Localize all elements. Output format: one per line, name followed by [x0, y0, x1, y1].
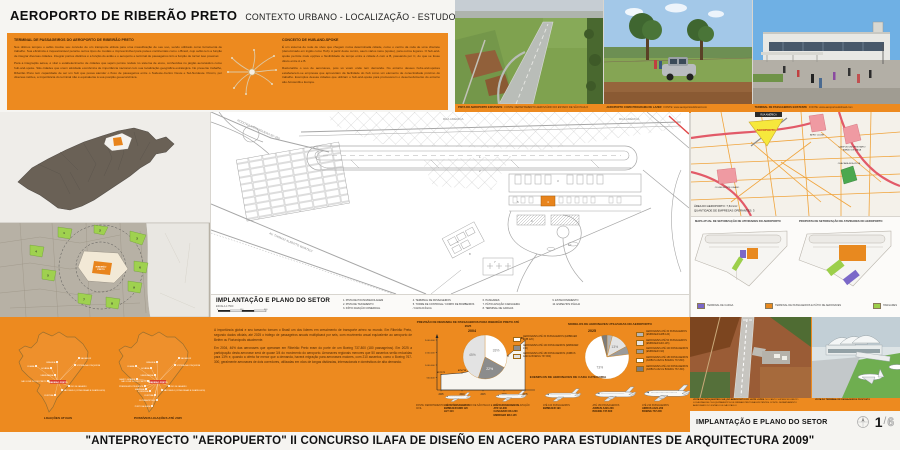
intro-left-paragraph: Nos últimos tempos o avião mudou seu con…: [14, 45, 222, 59]
caption-source: FONTE: www.aeroportosdobrasil.com: [809, 106, 853, 109]
svg-text:1.000.000: 1.000.000: [425, 365, 436, 367]
demand-chart-title: PREVISÃO DE DEMANDA DE PASSAGEIROS PARA …: [416, 321, 520, 329]
page-subtitle: CONTEXTO URBANO - LOCALIZAÇÃO - ESTUDO D…: [245, 12, 455, 22]
brazil-map-future-links: CUIABÁBRASÍLIAGOIÂNIASALVADORVITÓRIA DA …: [110, 329, 206, 415]
terminal-block: [747, 248, 758, 259]
pie-chart-2004: 33%22%45%: [462, 334, 508, 380]
intro-right-column: CONCEITO DE HUB-AND-SPOKE É um sistema d…: [282, 38, 440, 105]
svg-text:GOIÂNIA: GOIÂNIA: [141, 367, 150, 370]
svg-text:CURITIBA: CURITIBA: [44, 394, 54, 397]
sheet-number: 1: [875, 414, 883, 430]
road-label: RUA AMÉRICA: [619, 116, 640, 121]
zoning-legend-item: TERMINAL DE PASSAGEIROS E PÁTIO DE AERON…: [765, 303, 841, 309]
plan-title: IMPLANTAÇÃO E PLANO DO SETOR: [216, 297, 330, 304]
intro-left-column: TERMINAL DE PASSAGEIROS DO AEROPORTO DE …: [14, 38, 222, 105]
bottom-band: CUIABÁBRASÍLIAGOIÂNIASALVADORVITÓRIA DA …: [0, 317, 900, 432]
caption-label: PISTA DO AEROPORTO EXISTENTE: [458, 106, 502, 109]
competition-banner: "ANTEPROYECTO "AEROPUERTO" II CONCURSO I…: [0, 432, 900, 450]
svg-text:SÃO PAULO (CONGONHAS E GUARULH: SÃO PAULO (CONGONHAS E GUARULHOS): [64, 389, 106, 392]
aircraft-category: ATÉ 210 PASSAGEIROS AIRBUS A321-200 BOEI…: [640, 382, 694, 417]
svg-text:CAMPO GRANDE: CAMPO GRANDE: [119, 378, 136, 381]
poi-label: CHÁCARA BOA VISTA: [838, 162, 861, 165]
svg-text:PRESIDENTE PRUDENTE: PRESIDENTE PRUDENTE: [119, 386, 144, 388]
region-center-label: RIBEIRÃO: [96, 266, 107, 269]
zoning-legend-item: HANGARES: [873, 303, 897, 309]
scale-bar: 0 150 300: [216, 308, 286, 314]
intro-right-title: CONCEITO DE HUB-AND-SPOKE: [282, 38, 440, 42]
aircraft-category: ATÉ 180 PASSAGEIROS AIRBUS A320-200 BOEI…: [591, 382, 641, 417]
photo-runway-aerial: [690, 317, 811, 398]
pie-year-label: 2025: [588, 329, 596, 333]
region-center-label: PRETO: [97, 269, 105, 271]
compass-icon: [856, 415, 870, 429]
plan-legend-item: 5. TORRE DE CONTROLE / CORPO DE BOMBEIRO…: [413, 303, 476, 311]
svg-text:RIO DE JANEIRO: RIO DE JANEIRO: [71, 385, 88, 388]
sheet-footer-bar: IMPLANTAÇÃO E PLANO DO SETOR 1 / 6: [690, 411, 900, 432]
svg-text:RIO DE JANEIRO: RIO DE JANEIRO: [171, 385, 188, 388]
regional-map: RIBEIRÃO PRETO 123 456 789 CIDADES VIZIN…: [0, 223, 210, 317]
photo-runway-existing: [455, 0, 603, 104]
header-bar: AEROPORTO DE RIBERÃO PRETO CONTEXTO URBA…: [0, 0, 455, 31]
cargo-block: [740, 250, 746, 258]
poi-label: CLUBE MONTE LÍBANO: [715, 186, 740, 189]
brazil-map-current-links: CUIABÁBRASÍLIAGOIÂNIASALVADORVITÓRIA DA …: [10, 329, 106, 415]
demand-text-block: A importância global e seu tamanho torna…: [214, 328, 412, 368]
aircraft-model: BOEING 767-300: [642, 410, 662, 413]
svg-text:45%: 45%: [469, 353, 476, 357]
legend-swatch: [636, 349, 644, 355]
svg-text:RIBEIRÃO PRETO: RIBEIRÃO PRETO: [149, 381, 168, 384]
demand-paragraph: Em 2004, 46% das aeronaves que operaram …: [214, 346, 412, 366]
svg-text:SÃO PAULO (CONGONHAS E GUARULH: SÃO PAULO (CONGONHAS E GUARULHOS): [164, 389, 206, 392]
intro-left-title: TERMINAL DE PASSAGEIROS DO AEROPORTO DE …: [14, 38, 222, 42]
svg-text:CURITIBA: CURITIBA: [144, 394, 154, 397]
pie-2025-legend: AERONAVES ATÉ 30 PASSAGEIROS (EMBRAER EM…: [636, 331, 694, 374]
intro-left-paragraph: Para a integração aérea, é vital o estab…: [14, 61, 222, 80]
airplane-icon: [543, 388, 583, 402]
svg-text:RIBEIRÃO PRETO: RIBEIRÃO PRETO: [49, 381, 68, 384]
aircraft-model: LET 410: [444, 410, 454, 413]
city-context-map: RUA AMÉRICA AEROPORTO AERO CLUBE CAMPUS …: [691, 112, 900, 216]
svg-text:FLORIANÓPOLIS: FLORIANÓPOLIS: [139, 399, 156, 402]
svg-text:2.000.000: 2.000.000: [425, 340, 436, 342]
caption-source: FONTE: www.aeroportosdobrasil.com: [664, 106, 708, 109]
pie-chart-2025: 13%73%: [584, 334, 630, 380]
zoning-current: MAPA ATUAL DE SETORIZAÇÃO DE ATIVIDADES …: [691, 217, 795, 290]
svg-text:BRASÍLIA: BRASÍLIA: [146, 361, 156, 364]
zoning-proposed: PROPOSTA DE SETORIZAÇÃO DE ATIVIDADES DO…: [795, 217, 899, 290]
svg-text:VITÓRIA DA CONQUISTA: VITÓRIA DA CONQUISTA: [177, 364, 201, 367]
zoning-legend: TERMINAL DE CARGATERMINAL DE PASSAGEIROS…: [697, 303, 897, 309]
poster-board: AEROPORTO DE RIBERÃO PRETO CONTEXTO URBA…: [0, 0, 900, 450]
pie-legend-item: AERONAVES ATÉ 30 PASSAGEIROS (EMBRAER EM…: [636, 331, 694, 337]
poi-label: CAMPUS UNIVERSITÁRIO: [839, 146, 866, 149]
poi-label: BARÃO DE MAUÁ: [843, 149, 862, 152]
svg-text:500.000: 500.000: [427, 377, 436, 379]
svg-text:VITÓRIA DA CONQUISTA: VITÓRIA DA CONQUISTA: [77, 364, 101, 367]
photo-terminal-existing: [753, 0, 900, 104]
spoke-icon: [224, 44, 280, 100]
aircraft-section-header: MODELOS DE AERONAVES UTILIZADAS NO AEROP…: [523, 322, 697, 326]
svg-text:22%: 22%: [486, 367, 493, 371]
legend-swatch: [636, 332, 644, 338]
sheet-title: IMPLANTAÇÃO E PLANO DO SETOR: [696, 417, 856, 426]
brazil-map-caption: POSSÍVEIS LIGAÇÕES ATÉ 2025: [110, 416, 206, 420]
sheet-total: 6: [887, 415, 894, 429]
plan-title-block: IMPLANTAÇÃO E PLANO DO SETOR ESCALA 1:75…: [216, 297, 330, 314]
pie-legend-item: AERONAVES ATÉ 180 PASSAGEIROS (AIRBUS A3…: [636, 357, 694, 363]
svg-text:PORTO ALEGRE: PORTO ALEGRE: [135, 405, 151, 408]
pie-legend-item: AERONAVES ATÉ 100 PASSAGEIROS (EMBRAER 1…: [513, 345, 579, 351]
caption-label: VISTA DO TERMINAL DE PASSAGEIROS PROPOST…: [815, 399, 870, 401]
caption-source: FONTE: DEPARTAMENTO AEROVIÁRIO DO ESTADO…: [504, 106, 588, 109]
brazil-map-caption: LIGAÇÕES ATUAIS: [10, 416, 106, 420]
svg-text:1.500.000: 1.500.000: [425, 352, 436, 354]
svg-text:617.171: 617.171: [437, 372, 446, 374]
street-tag: RUA AMÉRICA: [760, 114, 777, 117]
airplane-icon: [593, 386, 638, 402]
intro-right-paragraph: É um sistema de rede de vôos que chegam …: [282, 45, 440, 64]
airport-operators-stat: QUANTIDADE DE EMPRESAS OPERANTES: 3: [694, 209, 755, 213]
svg-text:MARINGÁ: MARINGÁ: [135, 388, 145, 391]
svg-text:33%: 33%: [493, 349, 500, 353]
road-label: RUA AMÉRICA: [443, 116, 464, 121]
legend-swatch: [513, 337, 521, 343]
caption-label: TERMINAL DE PASSAGEIROS EXISTENTE: [755, 106, 807, 109]
plan-legend-item: 8. TERMINAL DE CARGAS: [483, 307, 546, 311]
aircraft-model: EMBRAER ERJ-145: [494, 414, 517, 417]
aircraft-examples-caption: EXEMPLOS DE AERONAVES DE CADA CATEGORIA: [442, 375, 694, 379]
pie-year-label: 2004: [468, 329, 476, 333]
aircraft-category: ATÉ 50 PASSAGEIROS ATR 42-300 CANADAIR C…: [492, 382, 542, 417]
airport-area-stat: ÁREA DO AEROPORTO: 7,61 km²: [694, 204, 737, 208]
svg-text:CUIABÁ: CUIABÁ: [27, 365, 35, 368]
svg-text:73%: 73%: [596, 366, 603, 370]
zoning-diagrams: MAPA ATUAL DE SETORIZAÇÃO DE ATIVIDADES …: [691, 217, 900, 317]
pie-legend-item: AERONAVES ATÉ 180 PASSAGEIROS (AIRBUS A3…: [513, 353, 579, 359]
plan-legend-list: 1. PISTA DE POUSO/DECOLAGEM2. PISTA DE T…: [343, 299, 685, 311]
sheet-number-separator: /: [884, 416, 887, 427]
legend-swatch: [513, 354, 521, 360]
legend-swatch: [513, 345, 521, 351]
photo-caption: VISTA DO TERMINAL DE PASSAGEIROS PROPOST…: [812, 398, 900, 411]
svg-text:GOIÂNIA: GOIÂNIA: [41, 367, 50, 370]
svg-text:UBERLÂNDIA: UBERLÂNDIA: [41, 374, 54, 377]
airplane-icon: [444, 392, 472, 402]
svg-text:10: 10: [568, 243, 572, 247]
aircraft-model: EMBRAER 190: [543, 407, 561, 410]
site-plan-legend: IMPLANTAÇÃO E PLANO DO SETOR ESCALA 1:75…: [211, 295, 689, 317]
aircraft-category: ATÉ 30 PASSAGEIROS EMBRAER EMB 120 LET 4…: [442, 382, 492, 417]
airport-label: AEROPORTO: [756, 128, 776, 132]
svg-text:UBERLÂNDIA: UBERLÂNDIA: [141, 374, 154, 377]
aircraft-model: BOEING 737-800: [593, 410, 613, 413]
caption-label: VISTA DA PISTA (SENTIDO SUL) DO AEROPORT…: [693, 399, 765, 401]
svg-text:300: 300: [264, 309, 268, 311]
legend-swatch: [873, 303, 881, 309]
zoning-legend-item: TERMINAL DE CARGA: [697, 303, 733, 309]
pie-legend-item: AERONAVES ATÉ 30 PASSAGEIROS (EMBRAER EM…: [513, 336, 579, 342]
poi-label: AERO CLUBE: [810, 134, 825, 137]
svg-text:SÃO JOSÉ DO RIO PRETO: SÃO JOSÉ DO RIO PRETO: [21, 380, 47, 383]
zoning-current-title: MAPA ATUAL DE SETORIZAÇÃO DE ATIVIDADES …: [695, 220, 795, 223]
terminal-block: [839, 245, 866, 261]
demand-paragraph: A importância global e seu tamanho torna…: [214, 328, 412, 343]
airplane-icon: [494, 390, 528, 402]
pie-legend-item: AERONAVES ATÉ 50 PASSAGEIROS (EMBRAER ER…: [636, 340, 694, 346]
svg-text:13%: 13%: [611, 345, 618, 349]
intro-right-paragraph: Racionaliza o uso de aeronaves, pois só …: [282, 66, 440, 85]
plan-legend-item: 3. PÁTIO AVIAÇÃO COMERCIAL: [343, 307, 406, 311]
plan-legend-item: 10. ESPELHOS D'ÁGUA: [552, 303, 615, 307]
legend-swatch: [636, 340, 644, 346]
pie-legend-item: AERONAVES ATÉ 100 PASSAGEIROS (EMBRAER 1…: [636, 348, 694, 354]
svg-text:SALVADOR: SALVADOR: [81, 357, 92, 360]
pie-legend-item: AERONAVES ATÉ 210 PASSAGEIROS (AIRBUS A3…: [636, 366, 694, 372]
intro-text-block: TERMINAL DE PASSAGEIROS DO AEROPORTO DE …: [7, 33, 448, 110]
pie-2004-legend: AERONAVES ATÉ 30 PASSAGEIROS (EMBRAER EM…: [513, 336, 579, 362]
legend-swatch: [636, 366, 644, 372]
svg-text:CUIABÁ: CUIABÁ: [127, 365, 135, 368]
hub-spoke-diagram: [222, 38, 282, 105]
airplane-icon: [642, 384, 692, 402]
svg-text:SALVADOR: SALVADOR: [181, 357, 192, 360]
legend-swatch: [765, 303, 773, 309]
svg-text:BRASÍLIA: BRASÍLIA: [46, 361, 56, 364]
legend-swatch: [697, 303, 705, 309]
aircraft-examples-row: ATÉ 30 PASSAGEIROS EMBRAER EMB 120 LET 4…: [442, 382, 694, 417]
photo-caption: VISTA DA PISTA (SENTIDO SUL) DO AEROPORT…: [690, 398, 811, 411]
legend-swatch: [636, 358, 644, 364]
zoning-proposed-title: PROPOSTA DE SETORIZAÇÃO DE ATIVIDADES DO…: [799, 220, 899, 223]
caption-label: AEROPORTO COMO PROGRAMA DE LAZER: [606, 106, 661, 109]
aircraft-category: ATÉ 100 PASSAGEIROS EMBRAER 190: [541, 382, 591, 417]
render-proposed-terminal: [812, 317, 900, 398]
page-title: AEROPORTO DE RIBERÃO PRETO: [10, 0, 237, 23]
photo-airport-leisure: [604, 0, 752, 104]
sao-paulo-state-map: RIBEIRÃO PRETO POPULAÇÃO: 563.107 (IBGE …: [0, 112, 210, 222]
site-plan-drawing: RODOVIA ANHANGUERA SP-330 RUA AMÉRICA RU…: [211, 112, 689, 294]
